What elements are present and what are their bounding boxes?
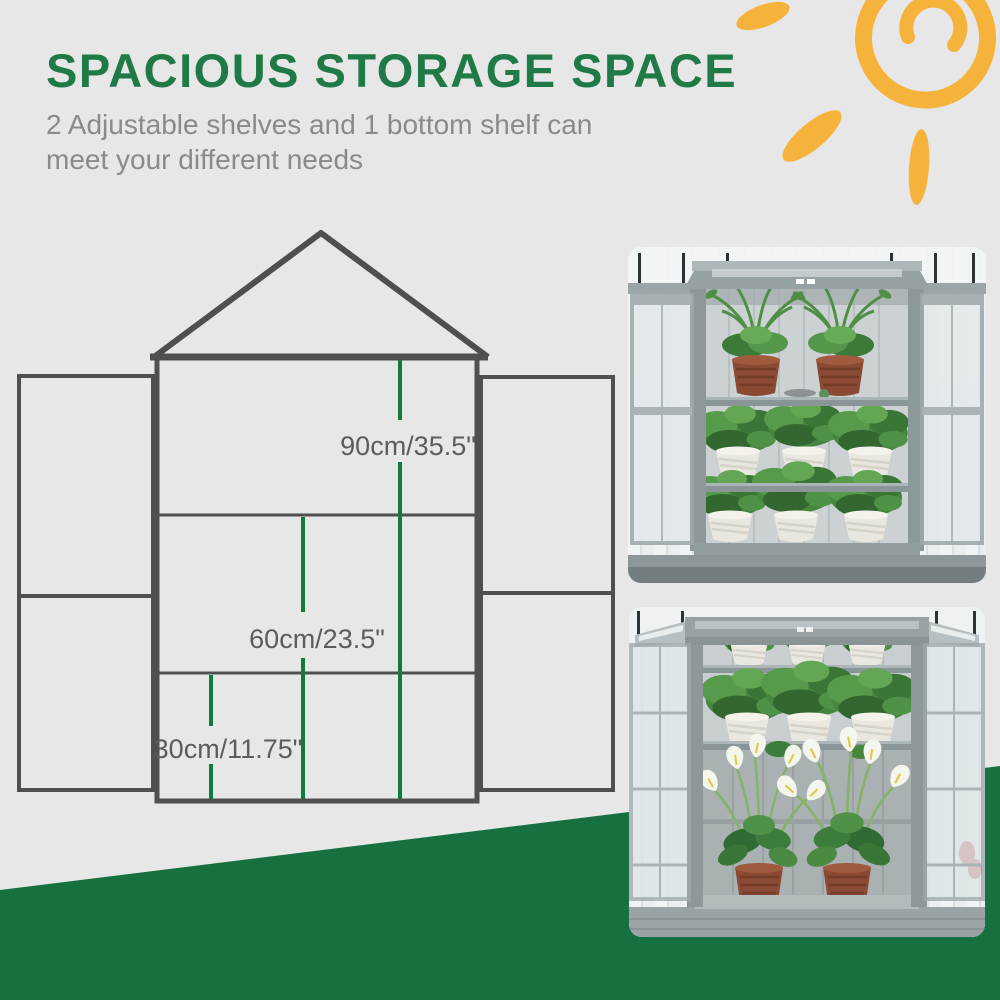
sun-doodle-icon: [733, 0, 988, 206]
product-infographic-page: 90cm/35.5" 60cm/23.5" 30cm/11.75" SPACIO…: [0, 0, 1000, 1000]
photo-bottom-storage-scene: [629, 607, 985, 937]
measurement-label-30cm: 30cm/11.75": [154, 734, 303, 764]
left-door-open: [631, 645, 689, 899]
garden-tools: [784, 389, 816, 397]
page-title: SPACIOUS STORAGE SPACE: [46, 45, 737, 97]
header-block: SPACIOUS STORAGE SPACE 2 Adjustable shel…: [46, 45, 737, 177]
subtitle-line-2: meet your different needs: [46, 142, 737, 177]
bottom-shelf-plants: [690, 461, 903, 542]
ground-strip-light: [628, 555, 986, 567]
measurement-labels: 90cm/35.5" 60cm/23.5" 30cm/11.75": [154, 431, 476, 764]
sun-spiral: [864, 0, 988, 100]
diagram-left-door: [19, 376, 153, 790]
cabinet-floor: [695, 895, 919, 909]
bottom-storage-back-wall: [703, 750, 911, 900]
diagram-roof: [150, 233, 488, 357]
greenhouse-dimension-diagram: [19, 233, 613, 801]
ground-strip: [628, 567, 986, 583]
page-subtitle: 2 Adjustable shelves and 1 bottom shelf …: [46, 107, 737, 177]
right-door-open: [925, 645, 983, 899]
measurement-label-90cm: 90cm/35.5": [340, 431, 476, 461]
left-door-open: [632, 295, 692, 543]
product-photo-shelves: [628, 247, 986, 583]
measurement-label-60cm: 60cm/23.5": [249, 624, 385, 654]
diagram-right-door: [481, 377, 613, 790]
subtitle-line-1: 2 Adjustable shelves and 1 bottom shelf …: [46, 107, 737, 142]
right-door-open: [922, 295, 982, 543]
photo-shelves-scene: [628, 247, 986, 583]
product-photo-bottom-storage: [629, 607, 985, 937]
